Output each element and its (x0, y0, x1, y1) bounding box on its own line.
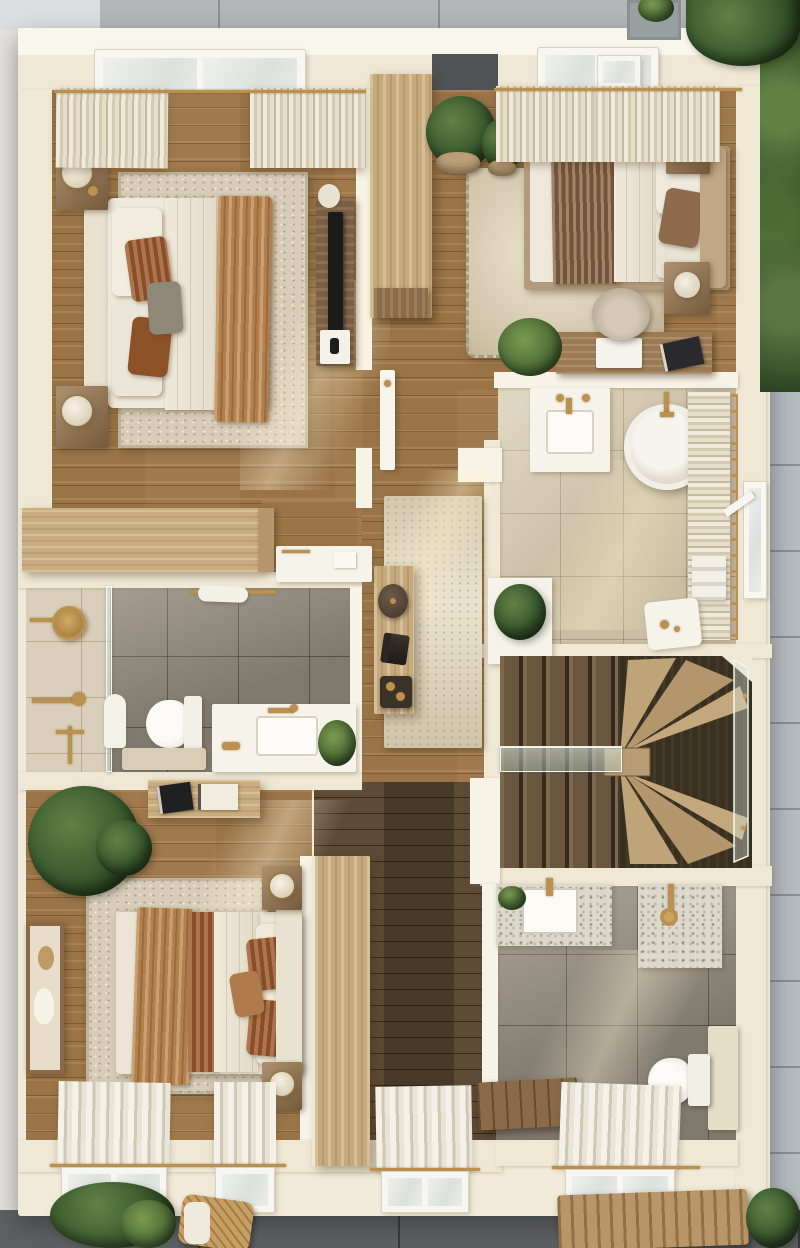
plant-lobe (96, 820, 152, 876)
basin (256, 716, 318, 756)
caramel-throw-bedroom1 (214, 196, 272, 423)
bath-mat (122, 748, 206, 770)
decor-figurine (330, 338, 339, 354)
window-pane (603, 61, 635, 83)
brass-towel-ladder (731, 394, 738, 640)
soap-set (222, 742, 240, 750)
headboard-bedroom3 (276, 908, 302, 1076)
brass-accessory (660, 620, 669, 629)
cup (386, 682, 395, 691)
tall-wardrobe-nook (370, 74, 432, 318)
bathroom-plant (494, 584, 546, 640)
toilet-tank (184, 696, 202, 750)
plant-bottom-right (746, 1188, 800, 1248)
top-window-small (598, 56, 640, 88)
brass-rail (282, 550, 310, 553)
curtain-bedroom3-right (214, 1082, 276, 1166)
window-pane (749, 488, 761, 592)
brass-faucet (546, 878, 553, 896)
dresser-side-panel (258, 508, 274, 572)
laptop (596, 338, 642, 368)
towel-stack (692, 556, 726, 600)
brass-tap (582, 394, 590, 402)
long-dresser (22, 508, 260, 572)
tray-with-cups (380, 676, 412, 708)
window-pane (388, 1178, 422, 1206)
table-lamp (270, 874, 294, 898)
rain-shower-head (52, 606, 86, 640)
curtain-bedroom1-left (56, 88, 169, 169)
trinket-dish (88, 186, 98, 196)
book-white (198, 784, 238, 810)
curtain-rod (552, 1166, 700, 1169)
curtain-rod (54, 90, 366, 93)
side-path-left (0, 0, 20, 1248)
brass-shower-head (660, 908, 678, 926)
book-black (156, 782, 194, 814)
brass-tap (556, 394, 564, 402)
pillow-gray (146, 281, 184, 335)
curtain-rod (370, 1168, 480, 1171)
brass-accessory (674, 626, 680, 632)
paving-corner-top-left (0, 0, 100, 30)
curtain-bedroom2-right (598, 86, 720, 162)
hand-shower-bar (32, 698, 76, 703)
table-lamp (62, 396, 92, 426)
art-shape-tan (38, 946, 54, 970)
half-wall-ledge (708, 1026, 738, 1130)
outer-wall-left (18, 90, 52, 508)
desk-box (334, 552, 356, 568)
shower-valve-bar (56, 730, 84, 734)
decor-vase (318, 184, 340, 208)
hanging-towel (198, 585, 249, 603)
tall-wardrobe-bedroom3 (312, 856, 370, 1166)
curtain-corridor (375, 1085, 472, 1171)
wardrobe-base-panel (374, 288, 428, 318)
plant-pot (488, 160, 516, 176)
duvet-bedroom2 (614, 152, 660, 282)
curtain-bedroom3-left (57, 1081, 170, 1167)
vase-accent (390, 598, 396, 604)
wall-bedroom1-right-lower (356, 448, 372, 508)
curtain-bedroom2-left (496, 86, 600, 162)
brass-spout (566, 398, 572, 414)
caramel-throw-bedroom3 (131, 907, 195, 1085)
wall-under-stairs (470, 778, 500, 884)
bath-stool (644, 597, 703, 650)
staircase (500, 656, 752, 868)
wall-stairs-bottom (480, 866, 772, 886)
toilet-cistern (688, 1054, 710, 1106)
towel-niche (104, 694, 126, 748)
chair-cushion (184, 1202, 210, 1244)
art-shape-white (34, 988, 54, 1024)
basin (546, 410, 594, 454)
brass-faucet-knob (290, 704, 298, 712)
curtain-rod (494, 88, 742, 91)
glass-balustrade (500, 746, 622, 772)
hand-shower-head (72, 692, 86, 706)
desk-palm-plant (498, 318, 562, 376)
curtain-bathroom2 (559, 1082, 682, 1170)
curtain-bedroom1-right (250, 88, 366, 168)
door-handle (384, 380, 391, 387)
curtain-rod (50, 1164, 286, 1167)
window-pane (428, 1178, 462, 1206)
window-corridor (382, 1172, 468, 1212)
cup (396, 692, 405, 701)
plant-bottom-left-lobe (120, 1200, 176, 1248)
plant-pot (436, 152, 480, 174)
floor-plan-scene (0, 0, 800, 1248)
desk-chair (592, 288, 650, 340)
water-pitcher (674, 272, 700, 298)
vanity-plant-sprig (498, 886, 526, 910)
tub-faucet-spout (660, 412, 674, 417)
woven-bench (557, 1189, 749, 1248)
terrazzo-shower-panel (638, 884, 722, 968)
black-candle-decor (380, 632, 410, 665)
doorway-stub-bath-right (458, 448, 502, 482)
brown-throw-bedroom2 (551, 149, 619, 284)
vanity-plant (318, 720, 356, 766)
